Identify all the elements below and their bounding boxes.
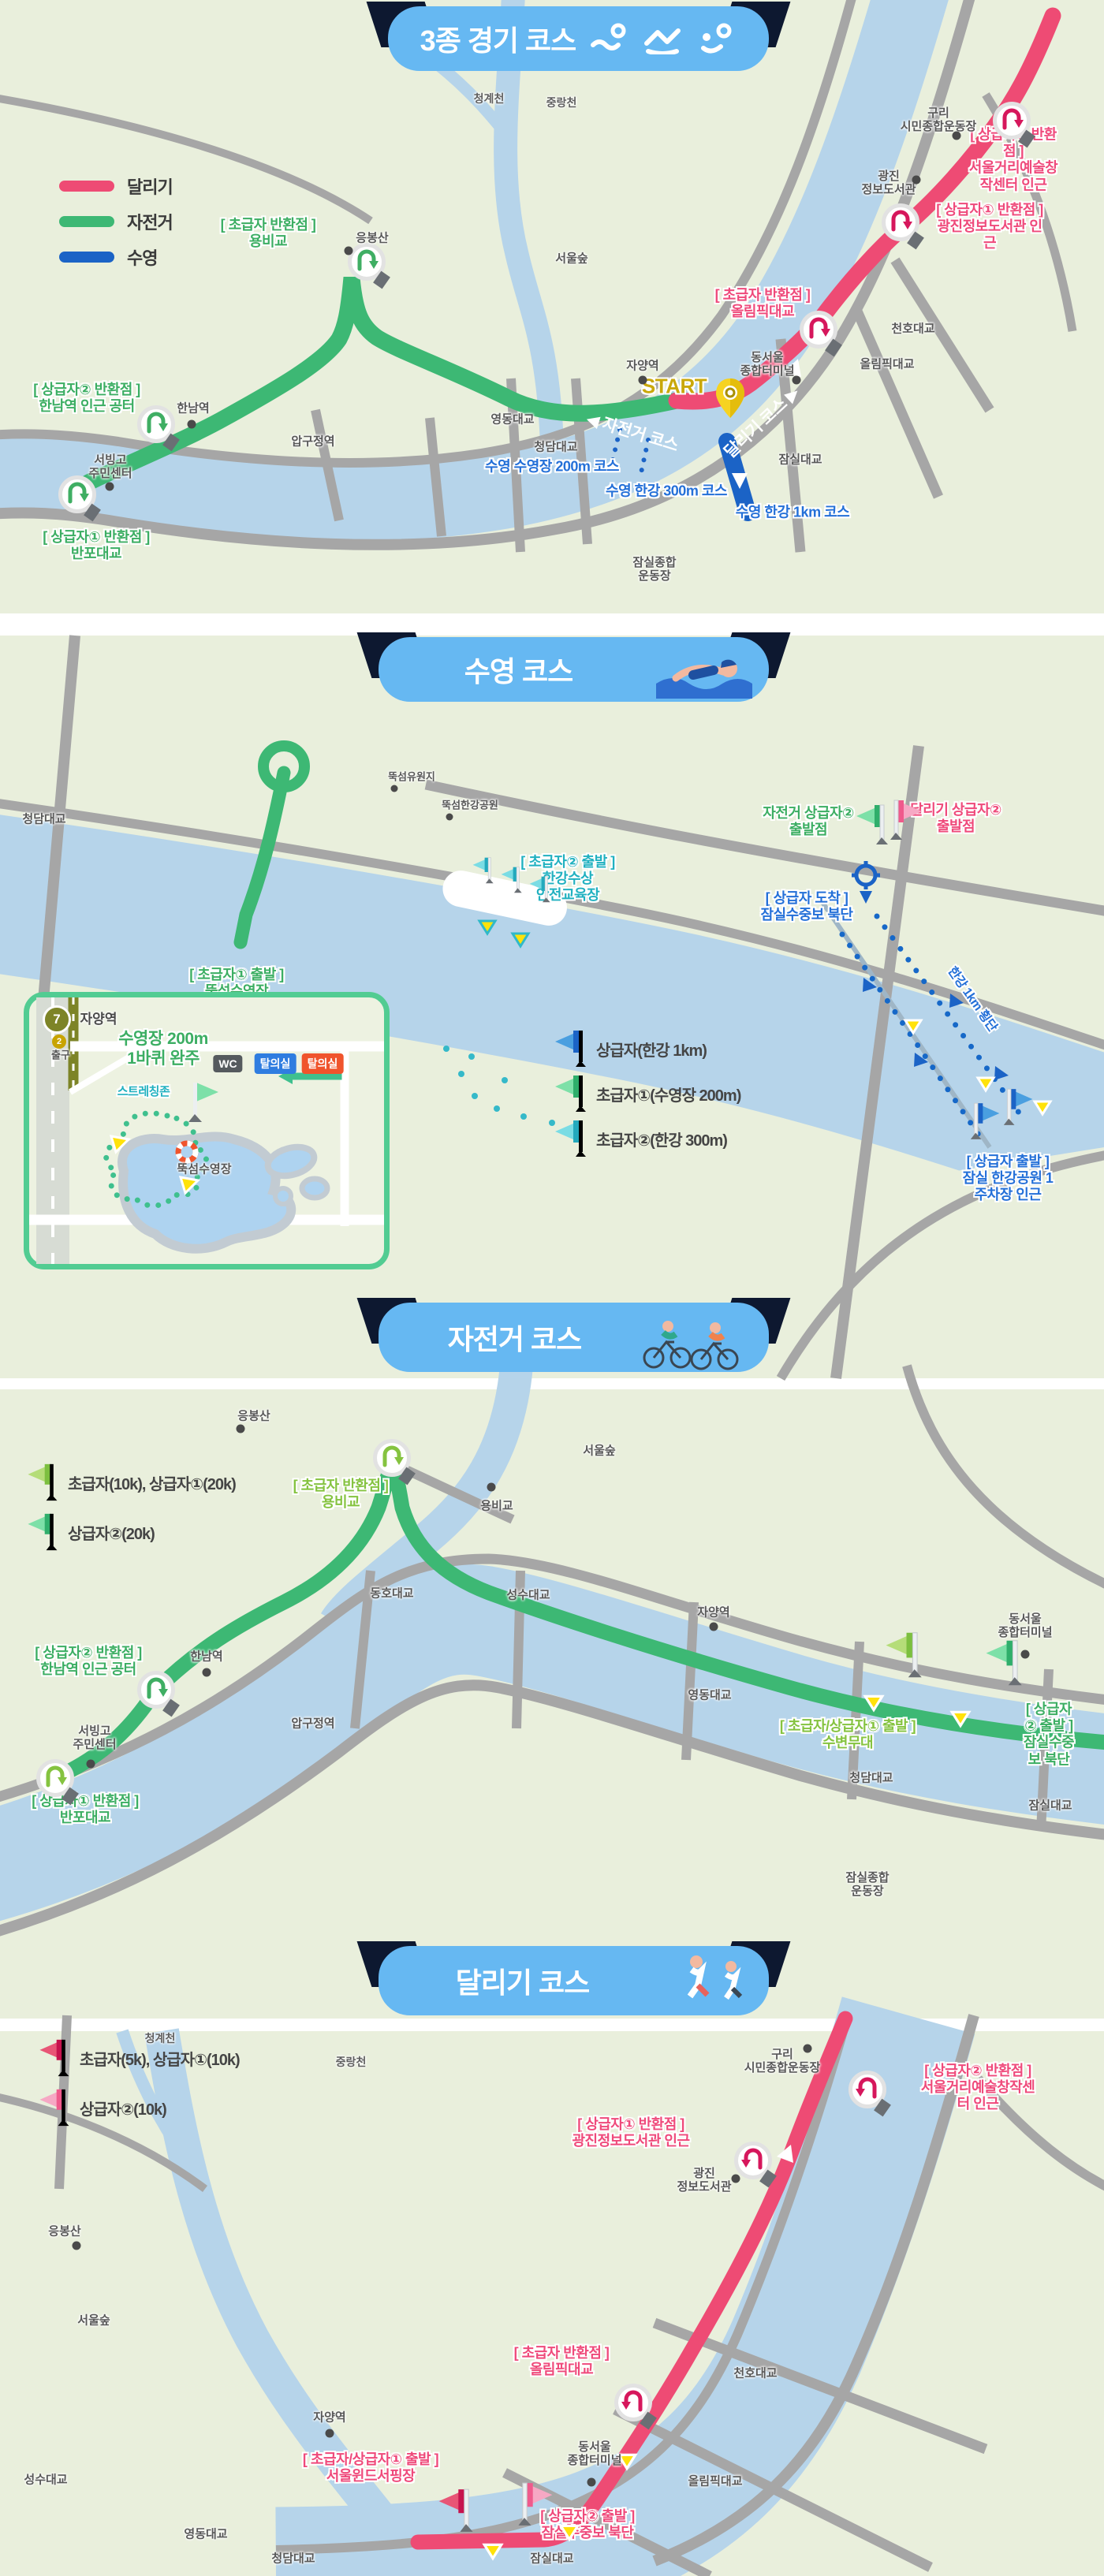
swimmer-illustration <box>652 640 755 699</box>
label-swim-pool-200m: 수영 수영장 200m 코스 <box>485 458 619 475</box>
swim-legend-beg1-label: 초급자①(수영장 200m) <box>596 1083 740 1105</box>
place-jayang-station: 자양역 <box>626 359 658 372</box>
place-dot <box>188 420 196 429</box>
triathlon-course-map: 3종 경기 코스 달리기 자전거 수영 [ 초급자 반환점 ] 용비교 [ 상급… <box>0 0 1104 2576</box>
place-dongho-bridge: 동호대교 <box>370 1586 413 1600</box>
run-beg-start-flag <box>435 2488 475 2537</box>
legend-swim-label: 수영 <box>127 244 157 270</box>
place-apgujeong-station: 압구정역 <box>291 1717 334 1730</box>
bike-legend-beg-label: 초급자(10k), 상급자①(20k) <box>68 1471 236 1494</box>
label-adv2-turn-artcenter: [ 상급자② 반환점 ] 서울거리예술창작센터 인근 <box>915 2063 1041 2113</box>
label-adv1-turn-library: [ 상급자① 반환점 ] 광진정보도서관 인근 <box>933 202 1047 252</box>
place-dot <box>487 1483 496 1492</box>
swim-legend-beg2: 초급자②(한강 300m) <box>552 1119 727 1158</box>
run-adv2-start-flag <box>517 2481 556 2531</box>
bike-legend-adv2: 상급자②(20k) <box>24 1512 155 1552</box>
place-seoul-forest: 서울숲 <box>555 252 587 265</box>
inset-pool-name: 뚝섬수영장 <box>177 1162 231 1176</box>
section2-title-banner: 수영 코스 <box>379 637 769 702</box>
place-dot <box>391 785 398 792</box>
place-olympic-bridge: 올림픽대교 <box>688 2474 742 2488</box>
pontoon-flag <box>528 874 551 908</box>
bike-line-swatch <box>59 216 114 227</box>
place-seobinggo-center: 서빙고 주민센터 <box>73 1724 116 1752</box>
place-jayang-station: 자양역 <box>697 1605 729 1619</box>
place-dot <box>326 2429 334 2438</box>
pontoon-flag <box>499 865 523 899</box>
place-eungbong-mountain: 응봉산 <box>237 1409 270 1422</box>
run-legend-adv2: 상급자②(10k) <box>35 2088 166 2127</box>
label-bike-start-subyeon-stage: [ 초급자/상급자① 출발 ] 수변무대 <box>780 1718 916 1751</box>
run-legend-beg-label: 초급자(5k), 상급자①(10k) <box>80 2047 240 2070</box>
bike-adv2-start-flag <box>983 1638 1024 1691</box>
swim-legend-adv-label: 상급자(한강 1km) <box>596 1038 707 1061</box>
place-dot <box>953 132 961 140</box>
run-adv2-start-flag <box>889 799 925 845</box>
legend-bike: 자전거 <box>59 209 173 234</box>
start-text: START <box>642 375 707 399</box>
place-guri-stadium: 구리 시민종합운동장 <box>901 106 977 134</box>
place-sports-complex: 잠실종합 운동장 <box>632 556 676 583</box>
course-triangle <box>949 1709 972 1728</box>
place-seobinggo-center: 서빙고 주민센터 <box>88 453 132 481</box>
place-east-seoul-terminal: 동서울 종합터미널 <box>567 2440 621 2468</box>
legend-run-label: 달리기 <box>127 173 173 199</box>
section1-title-banner: 3종 경기 코스 <box>388 6 769 71</box>
teal-flag-icon <box>552 1119 588 1158</box>
place-gwangjin-library: 광진 정보도서관 <box>677 2167 731 2194</box>
section4-title: 달리기 코스 <box>456 1960 590 2001</box>
label-beginner-turn-olympicbr: [ 초급자 반환점 ] 올림픽대교 <box>715 287 811 320</box>
place-dot <box>587 2478 596 2487</box>
place-dot <box>73 2242 81 2250</box>
course-triangle <box>558 2523 580 2542</box>
label-adv1-turn-library: [ 상급자① 반환점 ] 광진정보도서관 인근 <box>572 2116 689 2149</box>
lightgreen-flag-icon <box>24 1463 60 1502</box>
place-dot <box>446 814 453 821</box>
course-triangle <box>903 1018 923 1035</box>
place-seongsu-bridge: 성수대교 <box>506 1588 550 1601</box>
buoy-triangle <box>477 919 498 936</box>
uturn-icon-olympicbr <box>800 311 837 349</box>
course-triangle <box>863 1694 885 1713</box>
swim-line-swatch <box>59 252 114 263</box>
uturn-icon-banpo <box>36 1759 74 1797</box>
place-cheonggye-stream: 청계천 <box>145 2032 176 2045</box>
section3-title-banner: 자전거 코스 <box>379 1303 769 1372</box>
label-bike-adv2-startpoint: 자전거 상급자② 출발점 <box>763 805 854 838</box>
label-adv1-turn-banpo: [ 상급자① 반환점 ] 반포대교 <box>43 529 150 562</box>
swim-legend-beg1: 초급자①(수영장 200m) <box>552 1074 740 1113</box>
label-adv1-turn-banpo: [ 상급자① 반환점 ] 반포대교 <box>32 1793 139 1826</box>
place-dot <box>1021 1650 1030 1659</box>
uturn-icon-library <box>734 2142 772 2179</box>
place-dot <box>203 1668 211 1677</box>
place-ttukseom-hangang-park: 뚝섬한강공원 <box>442 800 498 812</box>
place-gwangjin-library: 광진 정보도서관 <box>861 170 916 197</box>
uturn-icon-yongbigyo <box>373 1439 411 1477</box>
place-dot <box>732 2175 740 2183</box>
course-triangle <box>482 2542 504 2561</box>
place-cheonho-bridge: 천호대교 <box>891 322 934 335</box>
place-jayang-station: 자양역 <box>313 2410 345 2424</box>
legend-swim: 수영 <box>59 244 157 270</box>
uturn-icon-banpo <box>58 475 96 513</box>
uturn-icon-library <box>882 203 919 241</box>
course-triangle <box>1032 1099 1053 1117</box>
legend-bike-label: 자전거 <box>127 209 173 234</box>
label-swim-river-1km: 수영 한강 1km 코스 <box>736 504 849 520</box>
place-dot <box>804 2045 812 2053</box>
bike-adv2-start-flag <box>853 803 890 850</box>
label-adv2-turn-hannam: [ 상급자② 반환점 ] 한남역 인근 공터 <box>35 1645 142 1678</box>
exit-number-badge: 2 <box>52 1035 66 1049</box>
locker-women-badge: 탈의실 <box>302 1053 344 1074</box>
map-background <box>0 0 1104 2576</box>
green-flag-icon <box>24 1512 60 1552</box>
place-dot <box>710 1623 718 1631</box>
swim-icon <box>588 23 629 54</box>
adv-start-flag-1 <box>969 1102 1002 1145</box>
locker-men-badge: 탈의실 <box>255 1053 297 1074</box>
place-east-seoul-terminal: 동서울 종합터미널 <box>740 351 794 378</box>
inset-station-name: 자양역 <box>80 1012 117 1027</box>
place-cheongdam-bridge: 청담대교 <box>849 1771 893 1784</box>
place-yongbi-bridge: 용비교 <box>480 1499 513 1512</box>
place-jungnang-stream: 중랑천 <box>336 2056 367 2068</box>
place-cheonggye-stream: 청계천 <box>474 92 505 105</box>
uturn-icon-artcenter <box>849 2071 886 2108</box>
place-olympic-bridge: 올림픽대교 <box>860 357 914 371</box>
label-swim-river-300m: 수영 한강 300m 코스 <box>606 483 727 499</box>
green-flag-icon <box>552 1074 588 1113</box>
label-adv-start-parking: [ 상급자 출발 ] 잠실 한강공원 1주차장 인근 <box>960 1154 1056 1204</box>
course-triangle <box>975 1076 996 1093</box>
place-yeongdong-bridge: 영동대교 <box>688 1688 731 1702</box>
swim-legend-beg2-label: 초급자②(한강 300m) <box>596 1128 727 1150</box>
section3-title: 자전거 코스 <box>448 1317 582 1358</box>
place-east-seoul-terminal: 동서울 종합터미널 <box>998 1612 1052 1640</box>
place-seongsu-bridge: 성수대교 <box>24 2473 67 2486</box>
place-cheongdam-bridge: 청담대교 <box>534 440 577 453</box>
uturn-icon-hannam <box>137 1671 175 1709</box>
place-hannam-station: 한남역 <box>190 1650 222 1663</box>
bike-legend-adv2-label: 상급자②(20k) <box>68 1521 155 1544</box>
blue-flag-icon <box>552 1029 588 1068</box>
place-cheonho-bridge: 천호대교 <box>733 2366 777 2380</box>
place-seoul-forest: 서울숲 <box>77 2313 110 2327</box>
uturn-icon-hannam <box>137 405 175 443</box>
place-dot <box>639 376 647 385</box>
uturn-icon-artcenter <box>993 102 1031 140</box>
inset-lap-label: 수영장 200m 1바퀴 완주 <box>118 1030 208 1069</box>
uturn-icon-yongbigyo <box>348 243 386 281</box>
place-jamsil-bridge: 잠실대교 <box>778 453 822 466</box>
label-beginner-turn-olympicbr: [ 초급자 반환점 ] 올림픽대교 <box>514 2345 610 2378</box>
label-bike-adv2-start-weir: [ 상급자② 출발 ] 잠실수중보 북단 <box>1021 1702 1076 1769</box>
place-eungbong-mountain: 응봉산 <box>356 231 388 244</box>
label-beginner-turn-yongbigyo: [ 초급자 반환점 ] 용비교 <box>293 1478 389 1511</box>
adv-start-flag-2 <box>1002 1087 1035 1131</box>
place-hannam-station: 한남역 <box>177 401 209 415</box>
place-eungbong-mountain: 응봉산 <box>48 2224 80 2238</box>
adv-finish-marker-icon <box>849 861 883 905</box>
place-jamsil-bridge: 잠실대교 <box>1028 1799 1072 1812</box>
swim-legend-adv: 상급자(한강 1km) <box>552 1029 707 1068</box>
run-legend-beg: 초급자(5k), 상급자①(10k) <box>35 2038 240 2078</box>
buoy-triangle <box>510 931 531 949</box>
place-yeongdong-bridge: 영동대교 <box>184 2527 227 2541</box>
bike-beg-start-flag <box>882 1631 923 1683</box>
place-jamsil-bridge: 잠실대교 <box>530 2552 573 2565</box>
legend-run: 달리기 <box>59 173 173 199</box>
place-jungnang-stream: 중랑천 <box>546 96 577 109</box>
start-pin-icon <box>714 377 747 419</box>
run-line-swatch <box>59 181 114 192</box>
pontoon-flag <box>471 856 494 889</box>
place-dot <box>237 1425 245 1433</box>
place-dot <box>793 376 801 385</box>
place-dot <box>912 176 921 185</box>
inset-exit-label: 출구 <box>51 1050 70 1062</box>
place-dot <box>87 1760 95 1769</box>
place-dot <box>106 483 114 491</box>
subway-line7-badge: 7 <box>43 1005 71 1034</box>
label-beginner-turn-yongbigyo: [ 초급자 반환점 ] 용비교 <box>221 217 316 250</box>
place-dot <box>345 247 353 255</box>
uturn-icon-olympicbr <box>614 2384 652 2421</box>
runners-illustration <box>668 1949 755 2015</box>
place-ttukseom-resort: 뚝섬유원지 <box>388 772 435 784</box>
section1-title: 3종 경기 코스 <box>420 18 576 59</box>
label-adv-finish-weir: [ 상급자 도착 ] 잠실수중보 북단 <box>761 890 853 923</box>
run-legend-adv2-label: 상급자②(10k) <box>80 2097 166 2119</box>
wc-badge: WC <box>213 1055 242 1072</box>
place-cheongdam-bridge: 청담대교 <box>22 812 65 826</box>
cyclists-illustration <box>636 1306 755 1372</box>
crimson-flag-icon <box>35 2038 72 2078</box>
inset-stretch-zone-label: 스트레칭존 <box>117 1085 170 1099</box>
place-cheongdam-bridge: 청담대교 <box>271 2552 315 2565</box>
place-seoul-forest: 서울숲 <box>583 1444 615 1457</box>
place-apgujeong-station: 압구정역 <box>291 434 334 448</box>
place-sports-complex: 잠실종합 운동장 <box>845 1871 889 1899</box>
label-run-start-windsurfing: [ 초급자/상급자① 출발 ] 서울윈드서핑장 <box>303 2451 438 2485</box>
label-adv2-turn-hannam: [ 상급자② 반환점 ] 한남역 인근 공터 <box>33 382 140 415</box>
bike-legend-beg: 초급자(10k), 상급자①(20k) <box>24 1463 236 1502</box>
place-yeongdong-bridge: 영동대교 <box>490 412 534 426</box>
run-icon <box>696 23 737 54</box>
section2-title: 수영 코스 <box>464 649 573 690</box>
pool-inset-map: 7 자양역 2 출구 수영장 200m 1바퀴 완주 스트레칭존 WC 탈의실 … <box>24 992 390 1269</box>
section4-title-banner: 달리기 코스 <box>379 1946 769 2015</box>
bike-icon <box>642 23 683 54</box>
pink-flag-icon <box>35 2088 72 2127</box>
